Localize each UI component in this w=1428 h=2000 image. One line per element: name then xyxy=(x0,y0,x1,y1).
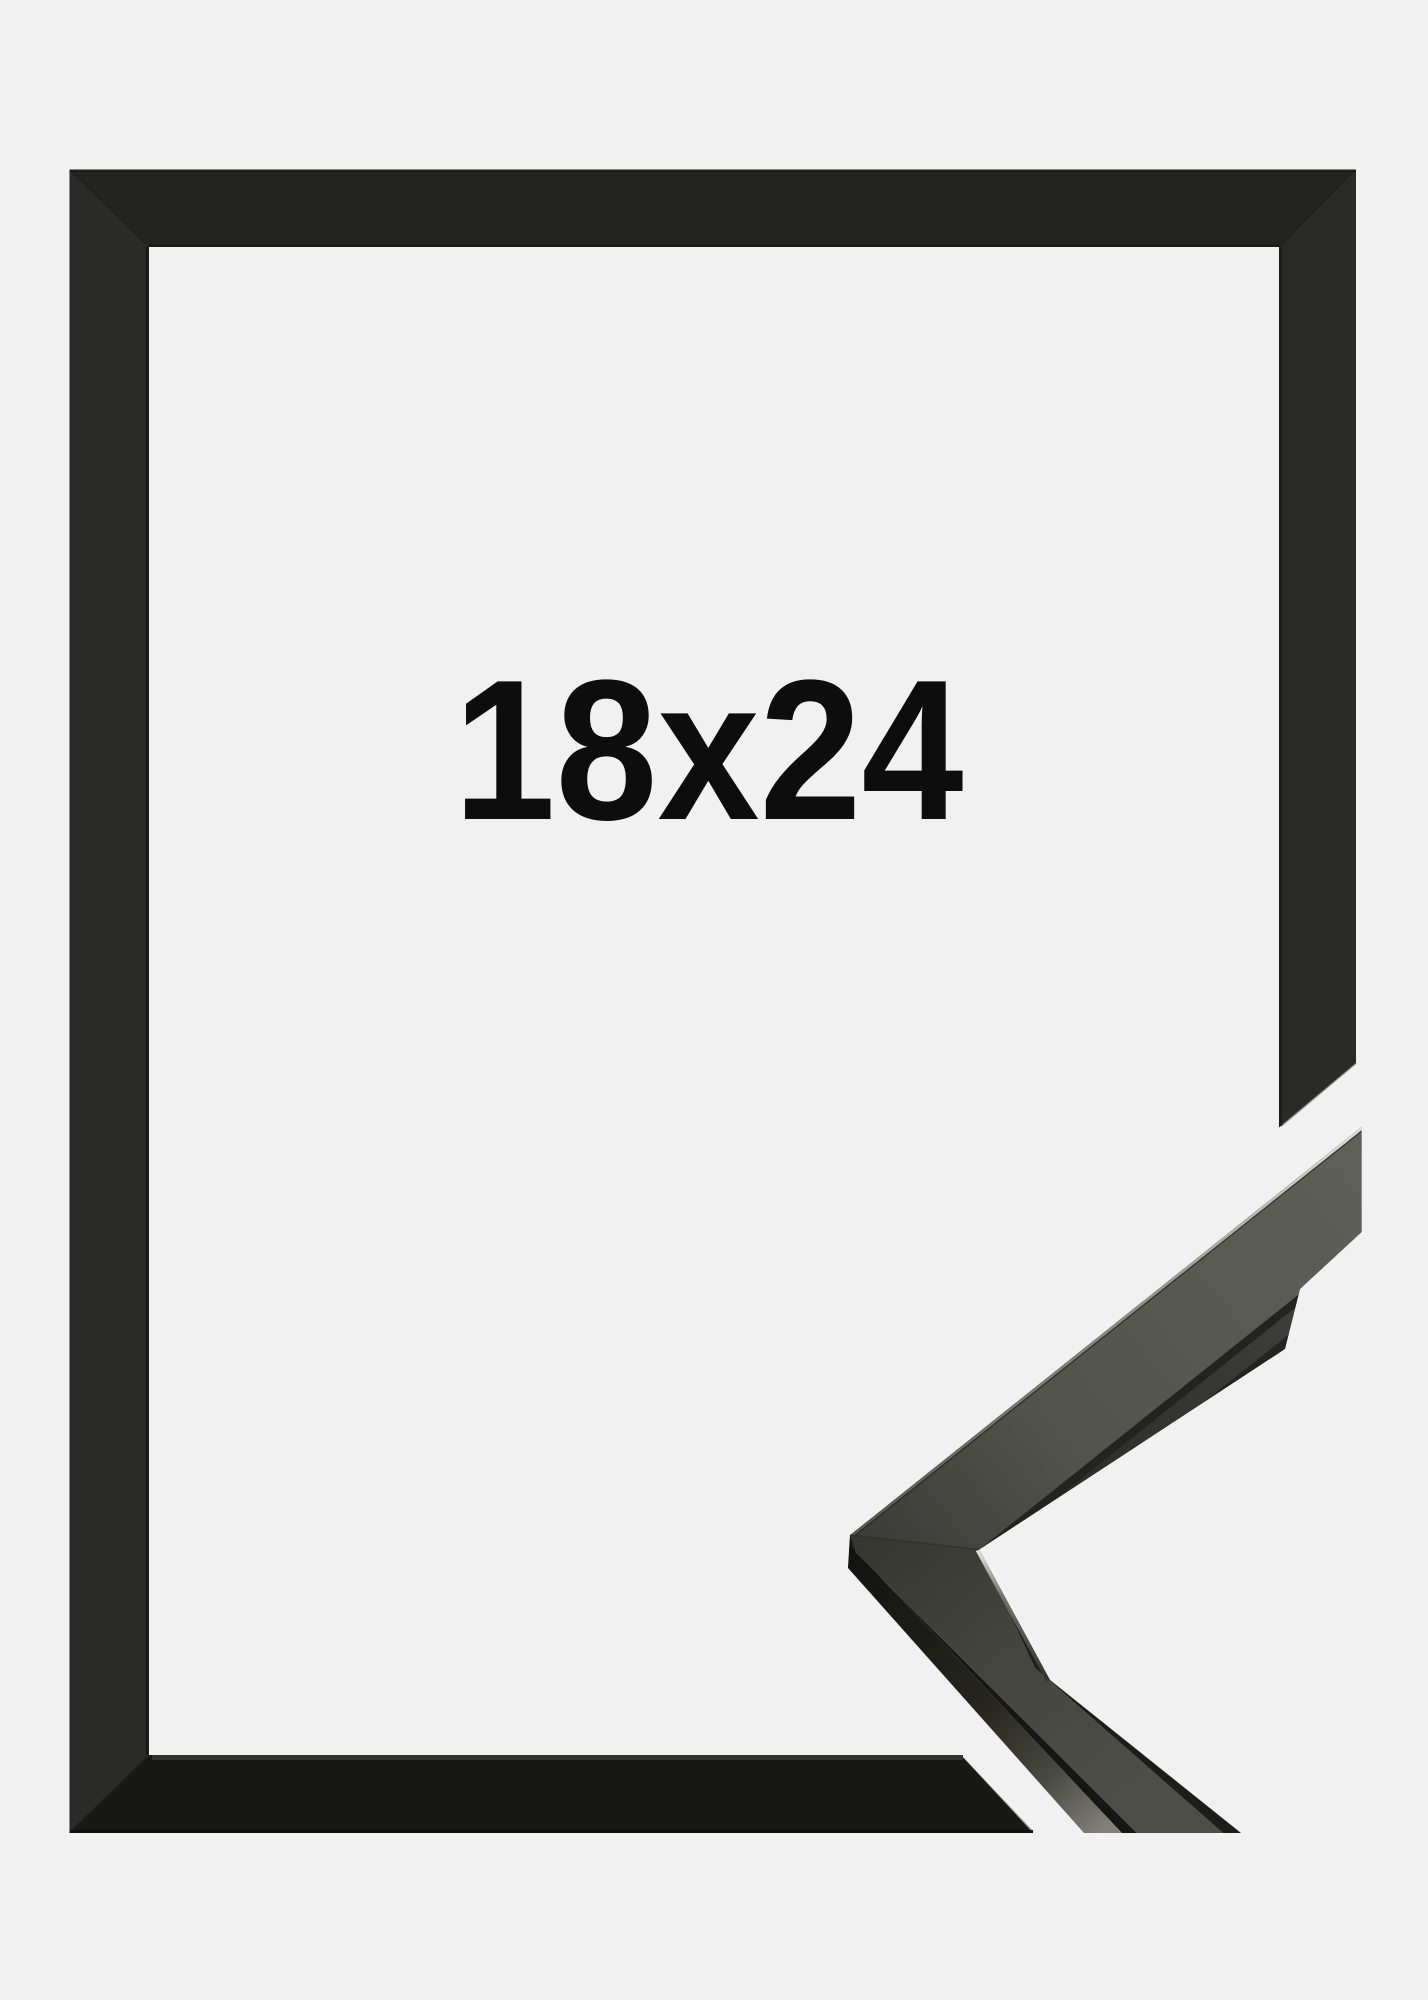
svg-text:18x24: 18x24 xyxy=(454,639,964,862)
